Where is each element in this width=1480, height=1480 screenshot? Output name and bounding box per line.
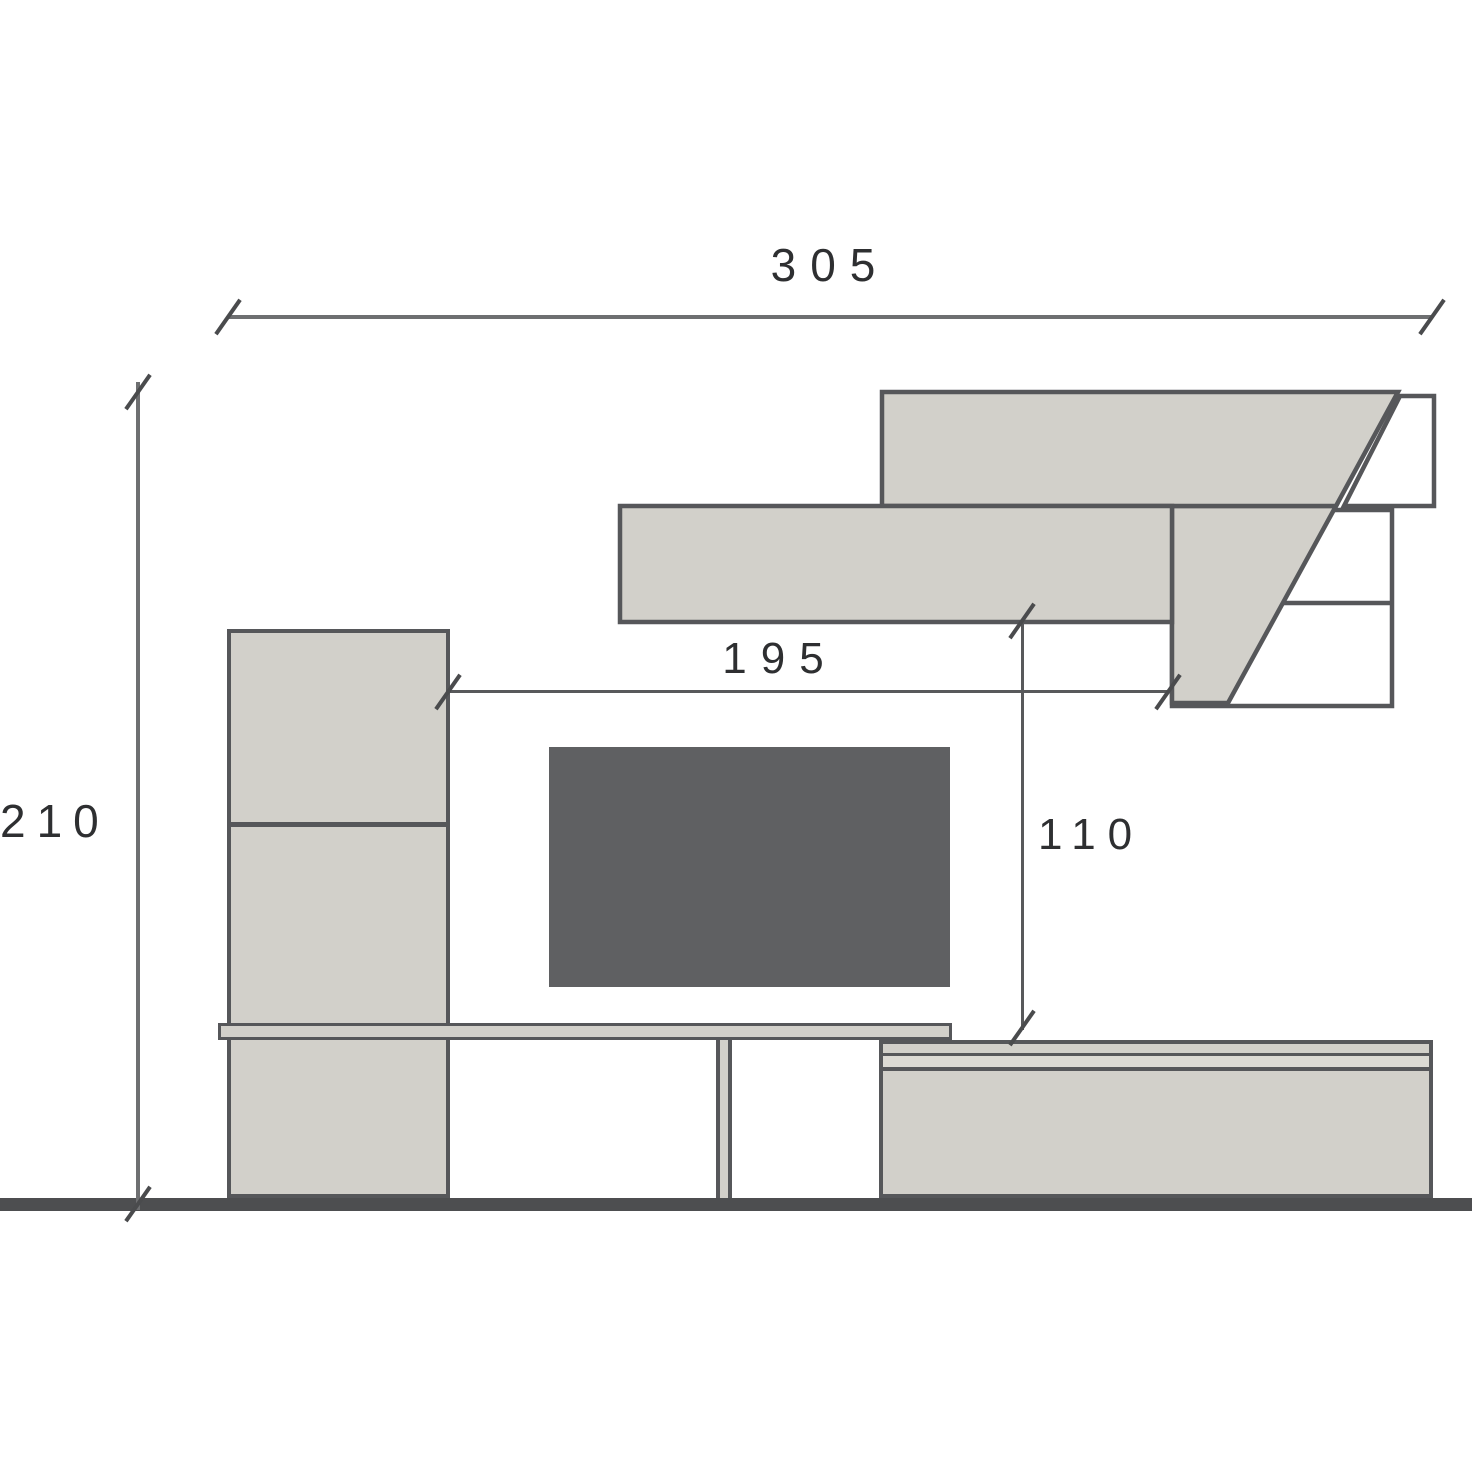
floor-line — [0, 1198, 1472, 1211]
middle-shelf-slab — [620, 506, 1172, 622]
left-cabinet-divider — [227, 822, 450, 827]
dim-height-line — [136, 382, 140, 1210]
technical-drawing-canvas: 305 210 195 110 — [0, 0, 1480, 1480]
dim-niche-width-line — [448, 690, 1168, 693]
dim-height-label: 210 — [0, 794, 110, 848]
right-cabinet-top-panel — [883, 1044, 1429, 1056]
dim-niche-height-label: 110 — [1038, 810, 1144, 860]
tv-screen — [549, 747, 950, 987]
dim-width-line — [228, 315, 1432, 319]
upper-shelf-slab — [882, 392, 1398, 506]
dim-width-label: 305 — [740, 238, 920, 292]
dim-niche-height-line — [1021, 620, 1024, 1030]
left-cabinet — [227, 629, 450, 1198]
tv-bench-leg — [716, 1040, 732, 1198]
bench-shelf — [218, 1023, 952, 1040]
right-cabinet-top-rail — [883, 1056, 1429, 1071]
right-low-cabinet — [879, 1040, 1433, 1198]
dim-niche-width-label: 195 — [690, 634, 870, 684]
